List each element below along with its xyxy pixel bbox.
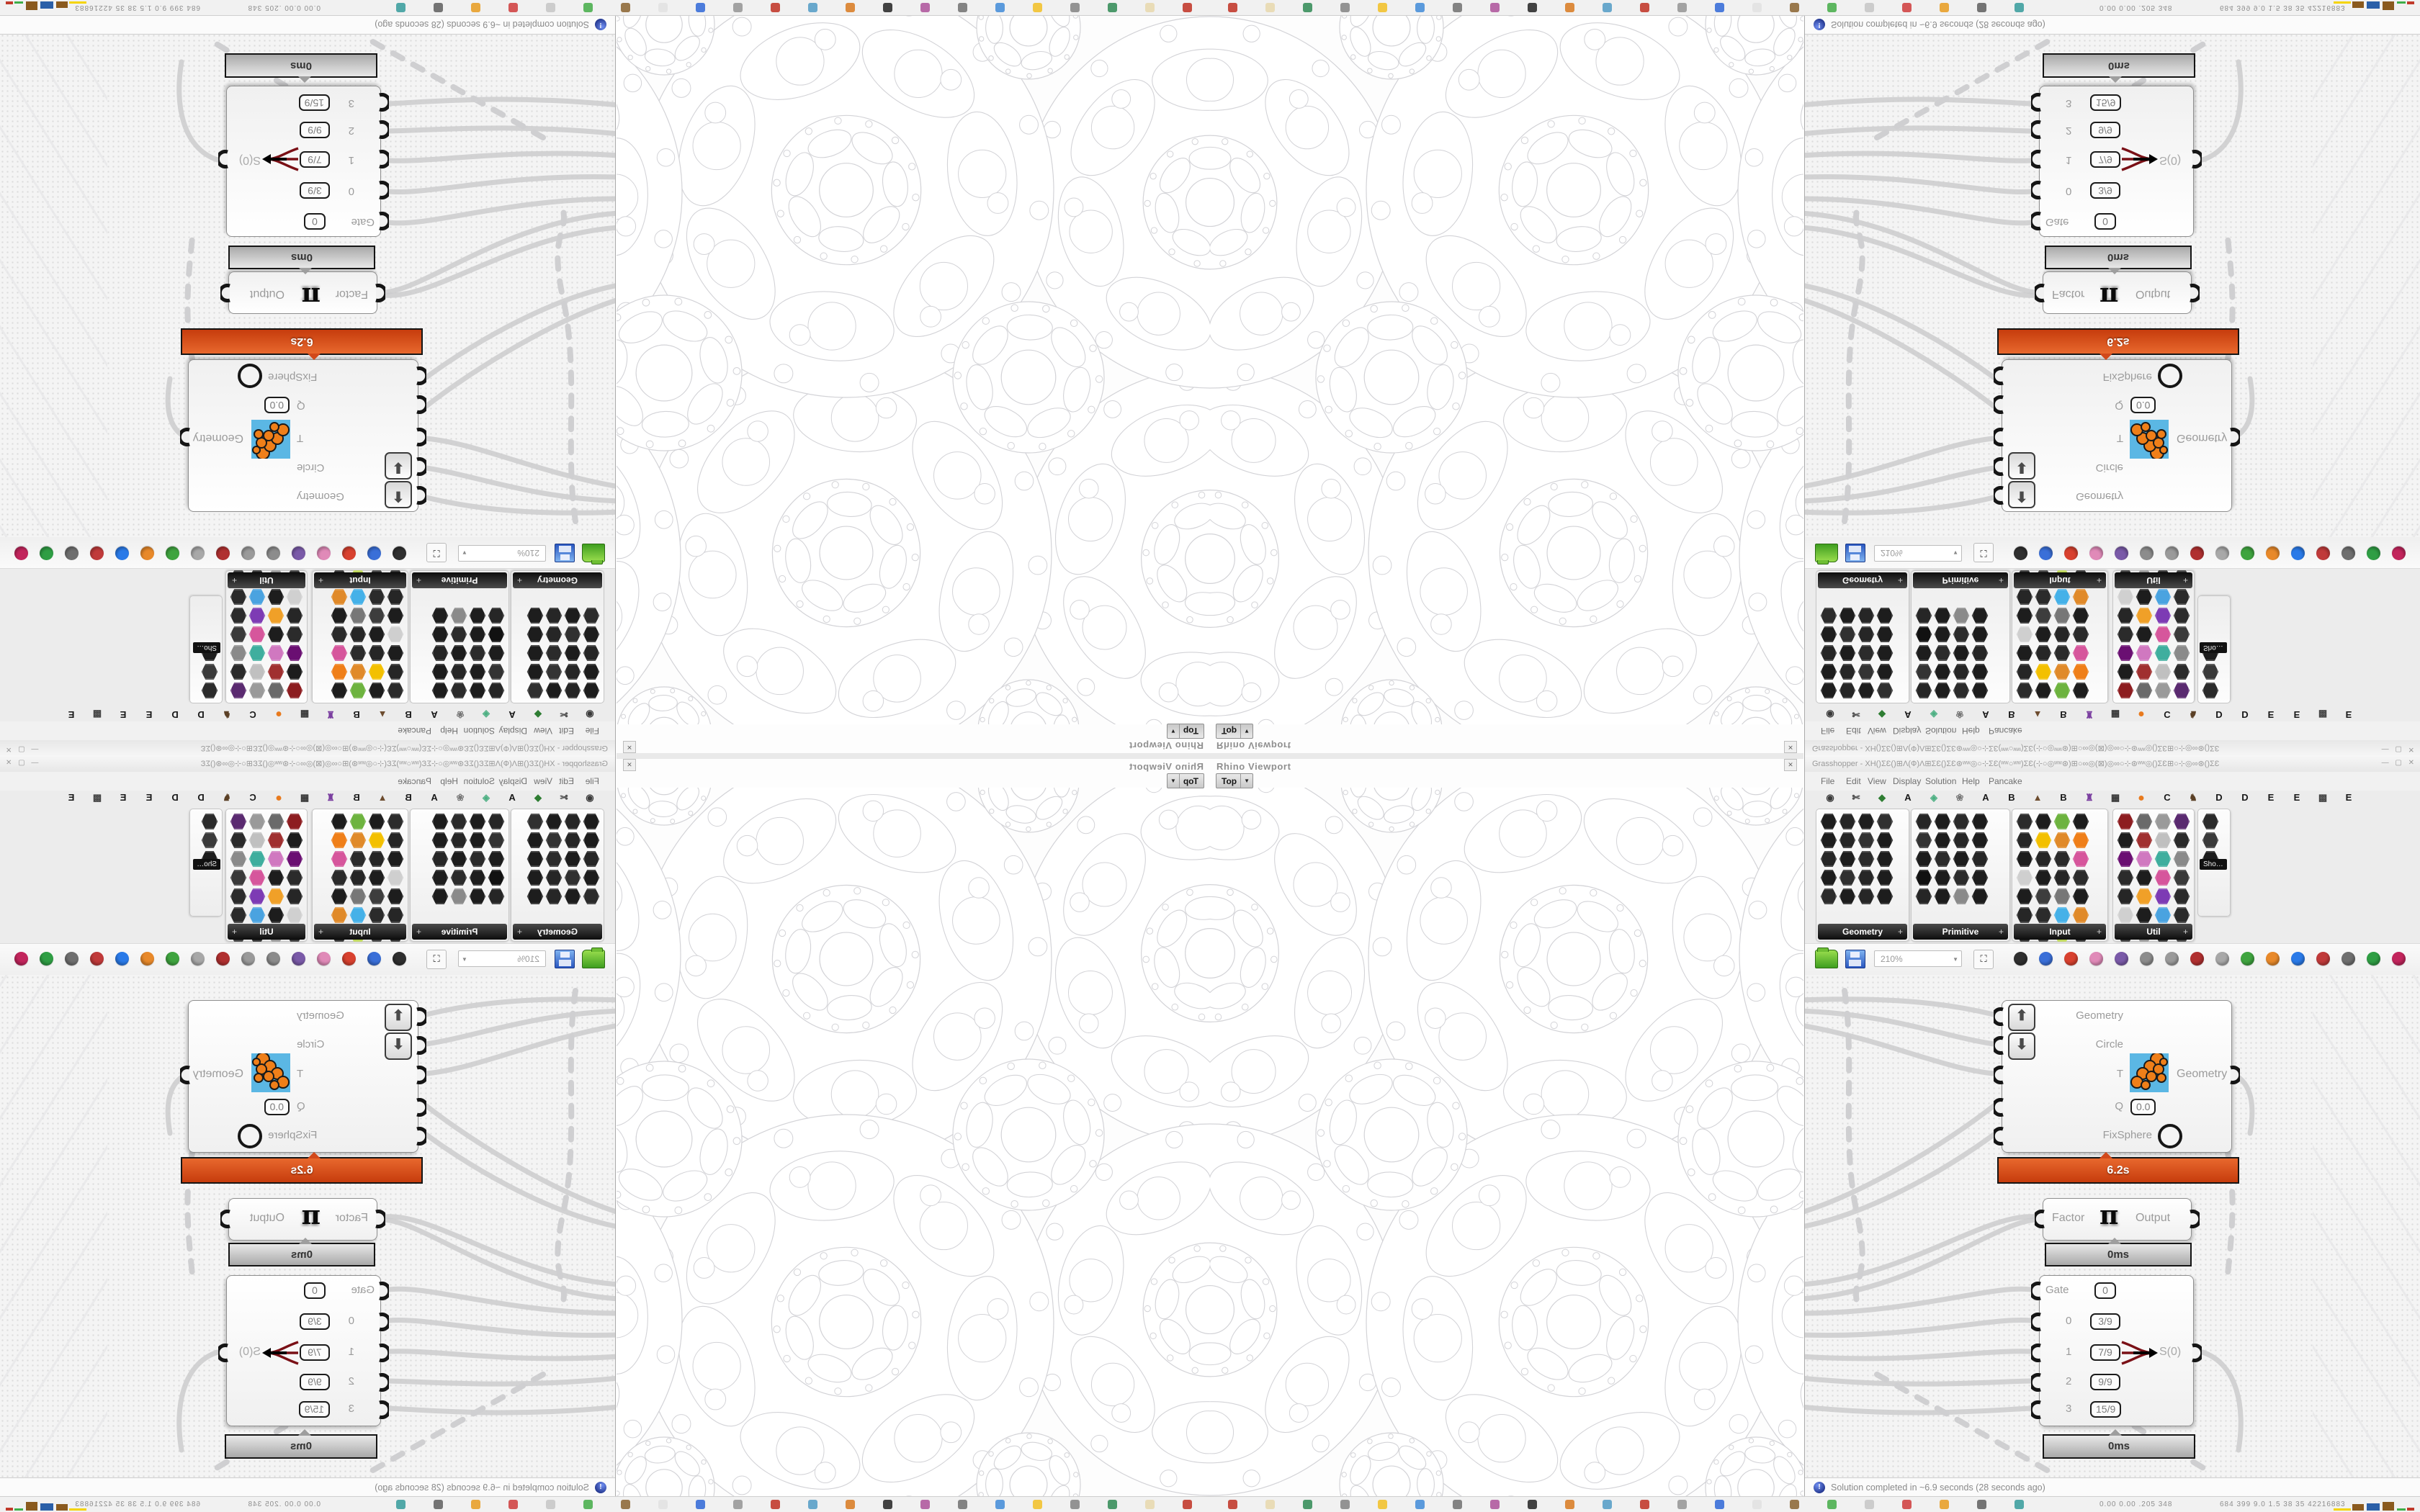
wire-port[interactable] (2192, 150, 2202, 168)
component-icon[interactable] (267, 607, 284, 624)
component-icon[interactable] (1915, 832, 1932, 849)
toolbar-tool-icon[interactable] (2392, 952, 2406, 966)
component-icon[interactable] (2136, 869, 2153, 886)
tray-icon[interactable] (2015, 1500, 2024, 1509)
component-icon[interactable] (1934, 682, 1951, 699)
category-tab-icon[interactable]: ▩ (86, 708, 108, 720)
toolbar-tool-icon[interactable] (241, 546, 255, 560)
component-icon[interactable] (2072, 813, 2089, 830)
component-icon[interactable] (387, 626, 404, 643)
toolbar-tool-icon[interactable] (2215, 546, 2229, 560)
tray-icon[interactable] (1340, 3, 1350, 12)
component-icon[interactable] (2173, 588, 2190, 606)
component-icon[interactable] (286, 588, 303, 606)
component-icon[interactable] (1839, 869, 1856, 886)
component-icon[interactable] (2154, 888, 2172, 905)
toolbar-tool-icon[interactable] (342, 952, 356, 966)
zoom-extents-button[interactable]: ⛶ (426, 950, 447, 969)
component-icon[interactable] (331, 626, 348, 643)
palette-group-label[interactable]: Geometry+ (1818, 572, 1907, 588)
component-icon[interactable] (2117, 607, 2134, 624)
component-icon[interactable] (1953, 869, 1970, 886)
component-icon[interactable] (564, 644, 581, 662)
component-icon[interactable] (526, 888, 544, 905)
palette-expand-plus[interactable]: + (416, 924, 421, 940)
toolbar-tool-icon[interactable] (2316, 546, 2330, 560)
component-icon[interactable] (387, 869, 404, 886)
component-icon[interactable] (286, 663, 303, 680)
component-icon[interactable] (230, 906, 247, 924)
component-icon[interactable] (230, 682, 247, 699)
toolbar-tool-icon[interactable] (2367, 546, 2380, 560)
component-icon[interactable] (230, 869, 247, 886)
component-icon[interactable] (2016, 906, 2033, 924)
palette-expand-plus[interactable]: + (416, 572, 421, 588)
gate-row-value[interactable]: 15/9 (299, 1401, 330, 1418)
menu-item-view[interactable]: View (1868, 726, 1886, 736)
component-icon[interactable] (349, 850, 367, 868)
component-icon[interactable] (2154, 832, 2172, 849)
chevron-down-icon[interactable]: ▼ (1168, 728, 1179, 734)
component-icon[interactable] (469, 682, 486, 699)
component-icon[interactable] (583, 682, 600, 699)
close-icon[interactable]: ✕ (1784, 759, 1797, 771)
wire-port[interactable] (180, 428, 190, 446)
component-icon[interactable] (450, 626, 467, 643)
component-icon[interactable] (368, 888, 385, 905)
cluster-up-button[interactable]: ⬆ (385, 481, 412, 508)
toolbar-tool-icon[interactable] (2316, 952, 2330, 966)
category-tab-icon[interactable]: E (60, 709, 82, 720)
component-icon[interactable] (2117, 682, 2134, 699)
component-icon[interactable] (349, 813, 367, 830)
component-icon[interactable] (526, 644, 544, 662)
menu-item-pancake[interactable]: Pancake (398, 776, 431, 786)
category-tab-icon[interactable]: ♞ (216, 708, 238, 720)
component-icon[interactable] (1876, 682, 1894, 699)
toolbar-tool-icon[interactable] (393, 952, 406, 966)
toolbar-tool-icon[interactable] (367, 546, 381, 560)
tray-icon[interactable] (883, 1500, 892, 1509)
toolbar-tool-icon[interactable] (65, 952, 79, 966)
component-icon[interactable] (2117, 869, 2134, 886)
component-icon[interactable] (2154, 644, 2172, 662)
tray-icon[interactable] (883, 3, 892, 12)
component-icon[interactable] (387, 607, 404, 624)
tray-icon[interactable] (471, 1500, 480, 1509)
wire-port[interactable] (416, 486, 426, 505)
component-icon[interactable] (248, 813, 266, 830)
component-icon[interactable] (450, 813, 467, 830)
chevron-down-icon[interactable]: ▼ (1241, 778, 1252, 784)
component-icon[interactable] (2072, 607, 2089, 624)
toolbar-tool-icon[interactable] (191, 546, 205, 560)
component-icon[interactable] (1971, 832, 1989, 849)
toolbar-tool-icon[interactable] (40, 546, 53, 560)
gate-component[interactable]: Gate003/917/929/9315/9S(0) (2039, 86, 2194, 237)
cluster-up-button[interactable]: ⬆ (2008, 1004, 2035, 1031)
component-icon[interactable] (2016, 813, 2033, 830)
toolbar-tool-icon[interactable] (2367, 952, 2380, 966)
gate-row-value[interactable]: 7/9 (300, 1344, 330, 1361)
wire-port[interactable] (379, 150, 389, 168)
menu-item-display[interactable]: Display (499, 726, 527, 736)
tray-icon[interactable] (546, 1500, 555, 1509)
category-tab-icon[interactable]: ❀ (1949, 708, 1971, 720)
category-tab-icon[interactable]: E (2338, 792, 2359, 803)
component-icon[interactable] (1820, 607, 1837, 624)
component-icon[interactable] (2136, 682, 2153, 699)
palette-group-label[interactable]: Geometry+ (513, 572, 602, 588)
component-icon[interactable] (2136, 626, 2153, 643)
toolbar-tool-icon[interactable] (292, 952, 305, 966)
gate-component[interactable]: Gate003/917/929/9315/9S(0) (2039, 1275, 2194, 1426)
wire-port[interactable] (379, 120, 389, 139)
cluster-down-button[interactable]: ⬇ (2008, 1032, 2035, 1060)
open-file-icon[interactable] (582, 544, 605, 562)
wire-port[interactable] (2190, 284, 2200, 302)
category-tab-icon[interactable]: D (2234, 709, 2256, 720)
wire-port[interactable] (218, 150, 228, 168)
chevron-down-icon[interactable]: ▼ (462, 544, 467, 561)
component-icon[interactable] (564, 888, 581, 905)
menu-item-solution[interactable]: Solution (1925, 776, 1956, 786)
component-icon[interactable] (1839, 850, 1856, 868)
chevron-down-icon[interactable]: ▼ (1953, 951, 1958, 968)
component-icon[interactable] (450, 682, 467, 699)
tray-icon[interactable] (1415, 1500, 1425, 1509)
tray-icon[interactable] (1340, 1500, 1350, 1509)
component-icon[interactable] (1971, 813, 1989, 830)
component-icon[interactable] (2202, 813, 2219, 830)
component-icon[interactable] (545, 888, 563, 905)
component-icon[interactable] (2136, 663, 2153, 680)
category-tab-icon[interactable]: D (2234, 792, 2256, 803)
component-icon[interactable] (1876, 813, 1894, 830)
toolbar-tool-icon[interactable] (40, 952, 53, 966)
component-icon[interactable] (583, 832, 600, 849)
toolbar-tool-icon[interactable] (342, 546, 356, 560)
component-icon[interactable] (230, 644, 247, 662)
open-file-icon[interactable] (1815, 950, 1838, 968)
toolbar-tool-icon[interactable] (317, 952, 331, 966)
tray-icon[interactable] (1902, 1500, 1912, 1509)
tray-icon[interactable] (771, 3, 780, 12)
component-icon[interactable] (286, 832, 303, 849)
palette-group-label[interactable]: Geometry+ (1818, 924, 1907, 940)
category-tab-icon[interactable]: ◉ (579, 708, 601, 720)
component-icon[interactable] (2035, 850, 2052, 868)
component-icon[interactable] (545, 626, 563, 643)
component-icon[interactable] (2072, 626, 2089, 643)
toolbar-tool-icon[interactable] (2039, 952, 2053, 966)
wire-port[interactable] (2190, 1210, 2200, 1228)
wire-port[interactable] (220, 284, 230, 302)
category-tab-icon[interactable]: D (164, 709, 186, 720)
component-icon[interactable] (526, 682, 544, 699)
menu-item-pancake[interactable]: Pancake (1989, 776, 2022, 786)
toolbar-tool-icon[interactable] (2089, 546, 2103, 560)
toolbar-tool-icon[interactable] (2165, 546, 2179, 560)
tray-icon[interactable] (583, 1500, 593, 1509)
category-tab-icon[interactable]: ◈ (1923, 708, 1945, 720)
zoom-extents-button[interactable]: ⛶ (1973, 543, 1994, 562)
tray-icon[interactable] (1183, 3, 1192, 12)
component-icon[interactable] (450, 832, 467, 849)
category-tab-icon[interactable]: B (2001, 792, 2022, 803)
category-tab-icon[interactable]: ▦ (2105, 792, 2126, 804)
tray-icon[interactable] (1265, 1500, 1275, 1509)
component-icon[interactable] (2035, 682, 2052, 699)
wire-port[interactable] (416, 428, 426, 446)
fixsphere-toggle[interactable] (2158, 1124, 2182, 1148)
category-tab-icon[interactable]: B (398, 792, 419, 803)
component-icon[interactable] (331, 869, 348, 886)
component-icon[interactable] (387, 682, 404, 699)
menu-item-file[interactable]: File (586, 776, 599, 786)
tray-icon[interactable] (920, 1500, 930, 1509)
tray-icon[interactable] (1453, 1500, 1462, 1509)
component-icon[interactable] (488, 888, 505, 905)
tray-icon[interactable] (1033, 1500, 1042, 1509)
window-controls[interactable]: — ▢ ✕ (4, 745, 38, 753)
wire-port[interactable] (2031, 1344, 2041, 1362)
wire-port[interactable] (416, 1066, 426, 1084)
category-tab-icon[interactable]: D (190, 709, 212, 720)
category-tab-icon[interactable]: A (1897, 709, 1919, 720)
category-tab-icon[interactable]: ◉ (1819, 708, 1841, 720)
gate-row-value[interactable]: 15/9 (2090, 94, 2121, 111)
gate-row-value[interactable]: 9/9 (300, 1374, 330, 1390)
cluster-up-button[interactable]: ⬆ (2008, 481, 2035, 508)
tray-icon[interactable] (995, 1500, 1005, 1509)
component-icon[interactable] (1953, 607, 1970, 624)
component-icon[interactable] (1934, 626, 1951, 643)
pi-factor-component[interactable]: FactorπOutput (228, 1198, 377, 1241)
category-tab-icon[interactable]: ● (268, 707, 290, 720)
toolbar-tool-icon[interactable] (2165, 952, 2179, 966)
component-icon[interactable] (2016, 607, 2033, 624)
component-icon[interactable] (1915, 813, 1932, 830)
tray-icon[interactable] (808, 3, 817, 12)
category-tab-icon[interactable]: C (2156, 792, 2178, 803)
component-icon[interactable] (267, 850, 284, 868)
category-tab-icon[interactable]: D (164, 792, 186, 803)
toolbar-tool-icon[interactable] (2266, 546, 2280, 560)
component-icon[interactable] (2072, 888, 2089, 905)
component-icon[interactable] (564, 850, 581, 868)
toolbar-tool-icon[interactable] (2190, 546, 2204, 560)
palette-group-label[interactable]: Input+ (2014, 924, 2106, 940)
wire-port[interactable] (416, 1036, 426, 1055)
cluster-up-button[interactable]: ⬆ (385, 1004, 412, 1031)
component-icon[interactable] (583, 663, 600, 680)
category-tab-icon[interactable]: ◉ (1819, 792, 1841, 804)
component-icon[interactable] (2154, 906, 2172, 924)
component-icon[interactable] (431, 626, 449, 643)
component-icon[interactable] (564, 869, 581, 886)
component-icon[interactable] (1971, 888, 1989, 905)
category-tab-icon[interactable]: ❀ (449, 708, 471, 720)
component-icon[interactable] (2117, 832, 2134, 849)
tray-icon[interactable] (846, 1500, 855, 1509)
component-icon[interactable] (286, 644, 303, 662)
window-controls[interactable]: — ▢ ✕ (4, 759, 38, 767)
category-tab-icon[interactable]: ✄ (1845, 708, 1867, 720)
category-tab-icon[interactable]: ♞ (2182, 792, 2204, 804)
wire-port[interactable] (1994, 1127, 2004, 1146)
component-icon[interactable] (2154, 588, 2172, 606)
toolbar-tool-icon[interactable] (14, 952, 28, 966)
component-icon[interactable] (2173, 813, 2190, 830)
component-icon[interactable] (2035, 588, 2052, 606)
cluster-component[interactable]: Geometry⬆Circle⬇TQ0.0FixSphereGeometry (2002, 1000, 2232, 1153)
gate-row-value[interactable]: 3/9 (2090, 182, 2120, 199)
category-tab-icon[interactable]: ◉ (579, 792, 601, 804)
toolbar-tool-icon[interactable] (115, 546, 129, 560)
component-icon[interactable] (1857, 682, 1875, 699)
tray-icon[interactable] (808, 1500, 817, 1509)
category-tab-icon[interactable]: ▩ (86, 792, 108, 804)
tray-icon[interactable] (1977, 1500, 1986, 1509)
component-icon[interactable] (267, 888, 284, 905)
wire-port[interactable] (2031, 181, 2041, 199)
tray-icon[interactable] (1565, 1500, 1574, 1509)
menu-item-edit[interactable]: Edit (1846, 776, 1861, 786)
wire-port[interactable] (2035, 1210, 2045, 1228)
component-icon[interactable] (545, 832, 563, 849)
component-icon[interactable] (349, 663, 367, 680)
zoom-extents-button[interactable]: ⛶ (1973, 950, 1994, 969)
component-icon[interactable] (286, 850, 303, 868)
gate-row-value[interactable]: 0 (304, 1282, 326, 1299)
category-tab-icon[interactable]: ▲ (372, 709, 393, 720)
component-icon[interactable] (2016, 644, 2033, 662)
cluster-component[interactable]: Geometry⬆Circle⬇TQ0.0FixSphereGeometry (188, 359, 418, 512)
toolbar-tool-icon[interactable] (2241, 546, 2254, 560)
component-icon[interactable] (2154, 682, 2172, 699)
palette-expand-plus[interactable]: + (517, 572, 522, 588)
toolbar-tool-icon[interactable] (266, 952, 280, 966)
tray-icon[interactable] (1865, 3, 1874, 12)
tray-icon[interactable] (1640, 1500, 1649, 1509)
tray-icon[interactable] (771, 1500, 780, 1509)
tray-icon[interactable] (1108, 3, 1117, 12)
component-icon[interactable] (1971, 644, 1989, 662)
component-icon[interactable] (1820, 813, 1837, 830)
cluster-q-value[interactable]: 0.0 (264, 1099, 290, 1115)
tray-icon[interactable] (621, 3, 630, 12)
gate-row-value[interactable]: 3/9 (2090, 1313, 2120, 1330)
tray-icon[interactable] (958, 1500, 967, 1509)
component-icon[interactable] (526, 607, 544, 624)
viewport-tab-top[interactable]: Top ▼ (1167, 724, 1204, 739)
category-tab-icon[interactable]: ◆ (1871, 792, 1893, 804)
component-icon[interactable] (368, 869, 385, 886)
component-icon[interactable] (331, 663, 348, 680)
component-icon[interactable] (1876, 663, 1894, 680)
tray-icon[interactable] (1303, 3, 1312, 12)
gate-row-value[interactable]: 3/9 (300, 182, 330, 199)
toolbar-tool-icon[interactable] (2215, 952, 2229, 966)
component-icon[interactable] (248, 869, 266, 886)
component-icon[interactable] (387, 906, 404, 924)
toolbar-tool-icon[interactable] (2341, 952, 2355, 966)
component-icon[interactable] (2117, 850, 2134, 868)
menu-item-edit[interactable]: Edit (559, 776, 574, 786)
component-icon[interactable] (583, 626, 600, 643)
tray-icon[interactable] (1827, 3, 1837, 12)
component-icon[interactable] (1876, 644, 1894, 662)
component-icon[interactable] (2117, 888, 2134, 905)
tray-icon[interactable] (1752, 3, 1762, 12)
palette-group-label[interactable]: Util+ (228, 572, 305, 588)
wire-port[interactable] (379, 1344, 389, 1362)
tray-icon[interactable] (958, 3, 967, 12)
wire-port[interactable] (1994, 395, 2004, 414)
component-icon[interactable] (431, 663, 449, 680)
toolbar-tool-icon[interactable] (266, 546, 280, 560)
component-icon[interactable] (1820, 626, 1837, 643)
toolbar-tool-icon[interactable] (2089, 952, 2103, 966)
wire-port[interactable] (416, 1098, 426, 1117)
gate-row-value[interactable]: 9/9 (2090, 1374, 2120, 1390)
component-icon[interactable] (488, 832, 505, 849)
tray-icon[interactable] (1108, 1500, 1117, 1509)
chevron-down-icon[interactable]: ▼ (462, 951, 467, 968)
component-icon[interactable] (1857, 644, 1875, 662)
component-icon[interactable] (469, 626, 486, 643)
wire-port[interactable] (379, 181, 389, 199)
window-controls[interactable]: — ▢ ✕ (2382, 759, 2416, 767)
wire-port[interactable] (1994, 1007, 2004, 1026)
component-icon[interactable] (2053, 626, 2071, 643)
close-icon[interactable]: ✕ (623, 759, 636, 771)
wire-port[interactable] (416, 395, 426, 414)
palette-group-label[interactable]: Util+ (2115, 924, 2192, 940)
category-tab-icon[interactable]: E (138, 792, 160, 803)
component-icon[interactable] (349, 626, 367, 643)
rhino-viewport-panel[interactable]: Rhino Viewport ✕ Top ▼ (1210, 16, 1804, 756)
tray-icon[interactable] (1145, 3, 1155, 12)
component-icon[interactable] (387, 663, 404, 680)
category-tab-icon[interactable]: B (2053, 709, 2074, 720)
component-icon[interactable] (1820, 832, 1837, 849)
component-icon[interactable] (349, 906, 367, 924)
component-icon[interactable] (349, 869, 367, 886)
toolbar-tool-icon[interactable] (90, 546, 104, 560)
component-icon[interactable] (2136, 588, 2153, 606)
category-tab-icon[interactable]: ▩ (2312, 708, 2334, 720)
component-icon[interactable] (450, 663, 467, 680)
component-icon[interactable] (387, 832, 404, 849)
component-icon[interactable] (431, 832, 449, 849)
component-icon[interactable] (2117, 663, 2134, 680)
component-icon[interactable] (1915, 682, 1932, 699)
tray-icon[interactable] (995, 3, 1005, 12)
component-icon[interactable] (1953, 813, 1970, 830)
toolbar-tool-icon[interactable] (2064, 952, 2078, 966)
component-icon[interactable] (1934, 663, 1951, 680)
wire-port[interactable] (1994, 1066, 2004, 1084)
tray-icon[interactable] (1070, 1500, 1080, 1509)
wire-port[interactable] (2031, 150, 2041, 168)
category-tab-icon[interactable]: ▩ (2312, 792, 2334, 804)
wire-port[interactable] (1994, 486, 2004, 505)
component-icon[interactable] (286, 869, 303, 886)
component-icon[interactable] (2053, 906, 2071, 924)
component-icon[interactable] (2136, 906, 2153, 924)
